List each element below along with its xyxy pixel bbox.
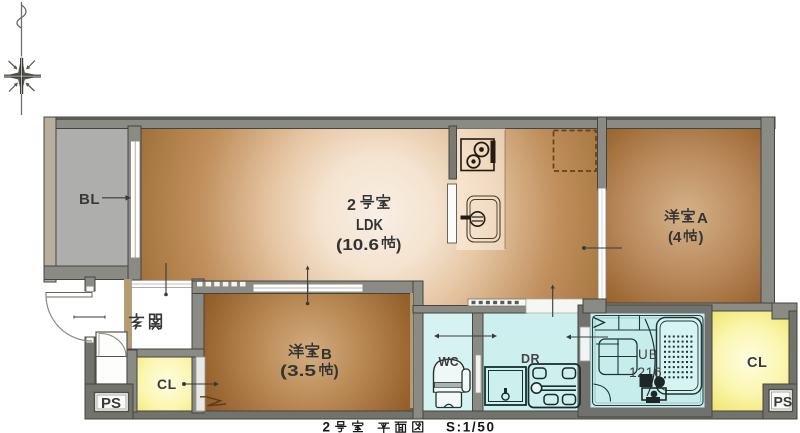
svg-text:2: 2 — [323, 420, 331, 433]
svg-text:UB: UB — [638, 347, 659, 362]
svg-text:(3.5: (3.5 — [280, 363, 316, 380]
svg-text:): ) — [396, 237, 401, 254]
svg-text:BL: BL — [79, 191, 100, 208]
svg-text:(4: (4 — [668, 229, 682, 246]
svg-text:(10.6: (10.6 — [336, 237, 379, 254]
svg-text:LDK: LDK — [356, 217, 384, 234]
svg-text:B: B — [321, 346, 332, 363]
svg-text:2: 2 — [347, 197, 356, 214]
svg-text:): ) — [334, 363, 339, 380]
svg-text:CL: CL — [747, 355, 767, 371]
svg-text:DR: DR — [521, 352, 540, 366]
svg-text:PS: PS — [774, 394, 793, 410]
svg-text:WC: WC — [439, 354, 460, 369]
svg-text:CL: CL — [157, 376, 177, 392]
svg-text:PS: PS — [101, 395, 121, 412]
svg-text:): ) — [699, 229, 704, 246]
svg-text:S:1/50: S:1/50 — [446, 420, 494, 433]
svg-text:A: A — [697, 210, 708, 227]
